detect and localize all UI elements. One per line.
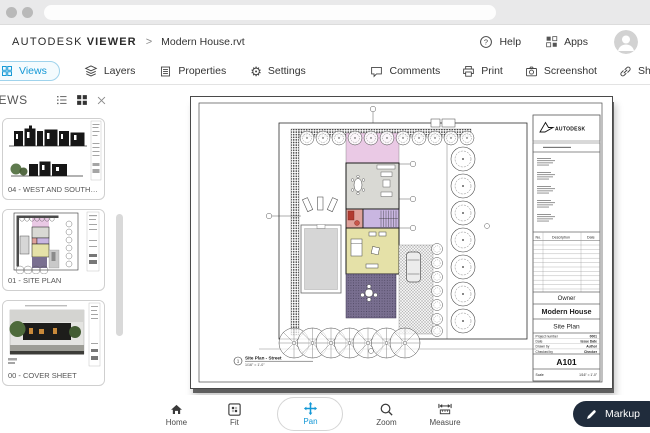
tab-settings[interactable]: ⚙ Settings	[250, 65, 306, 78]
view-number: 1	[237, 359, 240, 364]
settings-gear-icon: ⚙	[250, 65, 262, 78]
view-thumbnail-label: 00 - COVER SHEET	[3, 369, 104, 385]
param-value: 0001	[590, 334, 598, 338]
views-panel-title: VIEWS	[0, 93, 28, 107]
print-label: Print	[481, 65, 503, 77]
fit-icon	[227, 402, 242, 417]
grid-view-icon[interactable]	[76, 94, 88, 106]
share-label: Share	[638, 65, 650, 77]
thumbnail-cover-sheet-image	[3, 301, 104, 369]
view-thumbnail-label: 01 - SITE PLAN	[3, 274, 104, 290]
hedge-left	[291, 129, 299, 335]
close-panel-icon[interactable]	[96, 95, 107, 106]
breadcrumb-separator: >	[146, 36, 152, 48]
param-value: Issue Date	[581, 340, 598, 344]
pool	[301, 225, 341, 294]
view-thumbnail-cover-sheet[interactable]: 00 - COVER SHEET	[2, 300, 105, 386]
comments-button[interactable]: Comments	[370, 65, 440, 78]
revision-table: No. Description Date	[533, 232, 600, 292]
tab-layers[interactable]: Layers	[84, 64, 136, 78]
street-trees-top	[300, 131, 474, 145]
patio	[346, 274, 396, 318]
views-grid-icon	[1, 65, 13, 77]
browser-chrome	[0, 0, 650, 25]
title-block-view-name: Site Plan	[553, 324, 580, 331]
brand-autodesk: AUTODESK	[12, 36, 83, 48]
measure-label: Measure	[429, 418, 460, 427]
fit-label: Fit	[230, 418, 239, 427]
tab-properties-label: Properties	[178, 65, 226, 77]
param-label: Project number	[536, 334, 559, 338]
autodesk-logo: AUTODESK	[533, 115, 600, 141]
avatar[interactable]	[614, 30, 638, 54]
comments-label: Comments	[389, 65, 440, 77]
print-button[interactable]: Print	[462, 65, 503, 78]
view-label: 1 Site Plan - Street 1/16" = 1'-0"	[234, 356, 313, 368]
drawing-sheet: 1 Site Plan - Street 1/16" = 1'-0" AUTOD…	[190, 96, 613, 389]
link-icon	[619, 65, 632, 78]
toolbar: Views Layers Properties ⚙ Settings Comme…	[0, 58, 650, 85]
views-panel-header: VIEWS	[0, 86, 125, 112]
view-thumbnail-label: 04 - WEST AND SOUTH ELEVATIO...	[3, 183, 104, 199]
breadcrumb-file-name: Modern House.rvt	[161, 36, 244, 48]
tab-settings-label: Settings	[268, 65, 306, 77]
view-thumbnail-site-plan[interactable]: 01 - SITE PLAN	[2, 209, 105, 291]
measure-tool[interactable]: Measure	[429, 402, 460, 427]
screenshot-button[interactable]: Screenshot	[525, 65, 597, 78]
scale-value: 1/16" = 1'-0"	[579, 373, 598, 377]
gate	[431, 119, 455, 127]
thumbnail-site-plan-image	[3, 210, 104, 274]
tab-properties[interactable]: Properties	[159, 65, 226, 78]
title-block-project: Modern House	[542, 307, 592, 316]
browser-address-bar[interactable]	[44, 5, 496, 20]
home-label: Home	[166, 418, 187, 427]
sheet-number: A101	[556, 357, 577, 367]
markup-button[interactable]: Markup	[573, 401, 650, 427]
browser-back-button[interactable]	[6, 7, 17, 18]
tab-views-label: Views	[19, 65, 47, 77]
zoom-icon	[379, 402, 394, 417]
panel-scrollbar[interactable]	[116, 214, 123, 336]
title-block-params: Project number 0001 Date Issue Date Draw…	[533, 333, 600, 354]
lounge-chairs	[302, 197, 337, 212]
help-button[interactable]: ? Help	[479, 35, 521, 49]
pan-icon	[303, 401, 318, 416]
tab-views[interactable]: Views	[0, 61, 60, 81]
properties-icon	[159, 65, 172, 78]
view-thumbnail-elevations[interactable]: 04 - WEST AND SOUTH ELEVATIO...	[2, 118, 105, 200]
brand-viewer: VIEWER	[87, 36, 137, 48]
param-label: Checked by	[536, 350, 554, 354]
revision-col-description: Description	[552, 236, 570, 240]
pan-label: Pan	[303, 417, 317, 426]
list-view-icon[interactable]	[56, 94, 68, 106]
browser-forward-button[interactable]	[22, 7, 33, 18]
title-block-logo-text: AUTODESK	[555, 127, 585, 133]
zoom-label: Zoom	[376, 418, 396, 427]
trees-right-column	[451, 147, 475, 333]
site-plan-drawing: 1 Site Plan - Street 1/16" = 1'-0" AUTOD…	[191, 97, 612, 388]
house-bedroom	[346, 228, 399, 274]
share-button[interactable]: Share	[619, 65, 650, 78]
title-block-owner: Owner	[558, 296, 576, 302]
pen-icon	[585, 408, 598, 421]
scale-label: Scale	[536, 373, 544, 377]
param-value: Checker	[584, 350, 598, 354]
screenshot-label: Screenshot	[544, 65, 597, 77]
layers-icon	[84, 64, 98, 78]
car	[407, 252, 421, 282]
help-label: Help	[499, 36, 521, 48]
markup-label: Markup	[605, 408, 640, 420]
comments-icon	[370, 65, 383, 78]
tab-layers-label: Layers	[104, 65, 136, 77]
house-bathroom	[346, 209, 363, 228]
views-panel: VIEWS	[0, 86, 125, 395]
help-icon: ?	[479, 35, 493, 49]
house-living-room	[346, 163, 399, 209]
home-tool[interactable]: Home	[161, 402, 191, 427]
svg-text:?: ?	[484, 37, 488, 46]
measure-icon	[437, 402, 453, 417]
view-scale: 1/16" = 1'-0"	[245, 363, 265, 367]
bottom-toolbar: Home Fit Pan Zoom Measure	[0, 395, 650, 433]
param-label: Drawn by	[536, 345, 550, 349]
print-icon	[462, 65, 475, 78]
home-icon	[169, 402, 184, 417]
fit-tool[interactable]: Fit	[219, 402, 249, 427]
house-hall-stairs	[363, 209, 399, 228]
camera-icon	[525, 65, 538, 78]
param-value: Author	[586, 345, 598, 349]
apps-button[interactable]: Apps	[545, 35, 588, 48]
param-label: Date	[536, 340, 543, 344]
app-header: AUTODESK VIEWER > Modern House.rvt ? Hel…	[0, 25, 650, 58]
viewer-canvas[interactable]: 1 Site Plan - Street 1/16" = 1'-0" AUTOD…	[125, 86, 650, 395]
fan-trees-bottom	[279, 328, 420, 358]
consultant-lines	[537, 158, 555, 222]
pan-tool[interactable]: Pan	[277, 397, 343, 431]
revision-col-no: No.	[536, 236, 542, 240]
revision-col-date: Date	[587, 236, 595, 240]
apps-label: Apps	[564, 36, 588, 48]
view-title: Site Plan - Street	[245, 356, 282, 361]
thumbnail-elevations-image	[3, 119, 104, 183]
title-block: AUTODESK No. Description	[533, 115, 600, 381]
zoom-tool[interactable]: Zoom	[371, 402, 401, 427]
apps-icon	[545, 35, 558, 48]
